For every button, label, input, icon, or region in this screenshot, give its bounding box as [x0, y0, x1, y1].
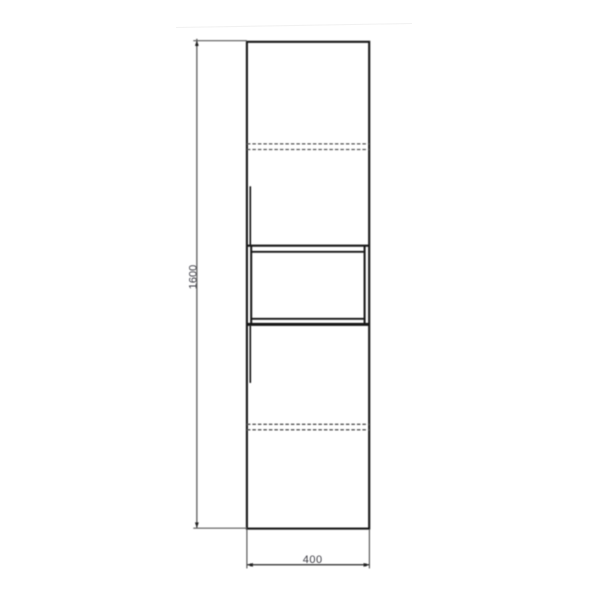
svg-text:1600: 1600	[187, 265, 199, 289]
svg-text:400: 400	[303, 554, 323, 566]
